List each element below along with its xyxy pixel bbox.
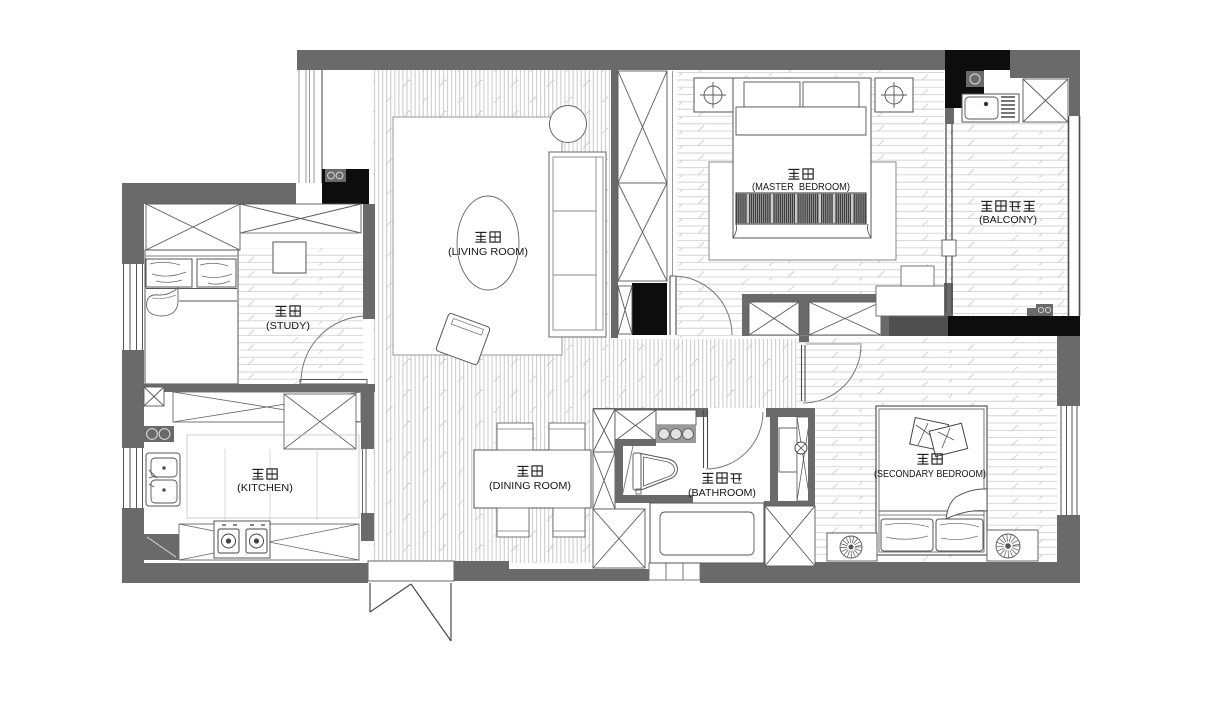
svg-text:(DINING ROOM): (DINING ROOM): [489, 480, 571, 492]
svg-text:(BALCONY): (BALCONY): [979, 214, 1037, 226]
svg-text:(KITCHEN): (KITCHEN): [237, 482, 293, 494]
svg-text:(STUDY): (STUDY): [266, 320, 310, 332]
svg-text:(MASTER BEDROOM): (MASTER BEDROOM): [752, 181, 850, 193]
svg-text:(BATHROOM): (BATHROOM): [688, 487, 756, 499]
svg-text:(LIVING ROOM): (LIVING ROOM): [448, 246, 528, 258]
svg-text:(SECONDARY BEDROOM): (SECONDARY BEDROOM): [874, 468, 986, 480]
